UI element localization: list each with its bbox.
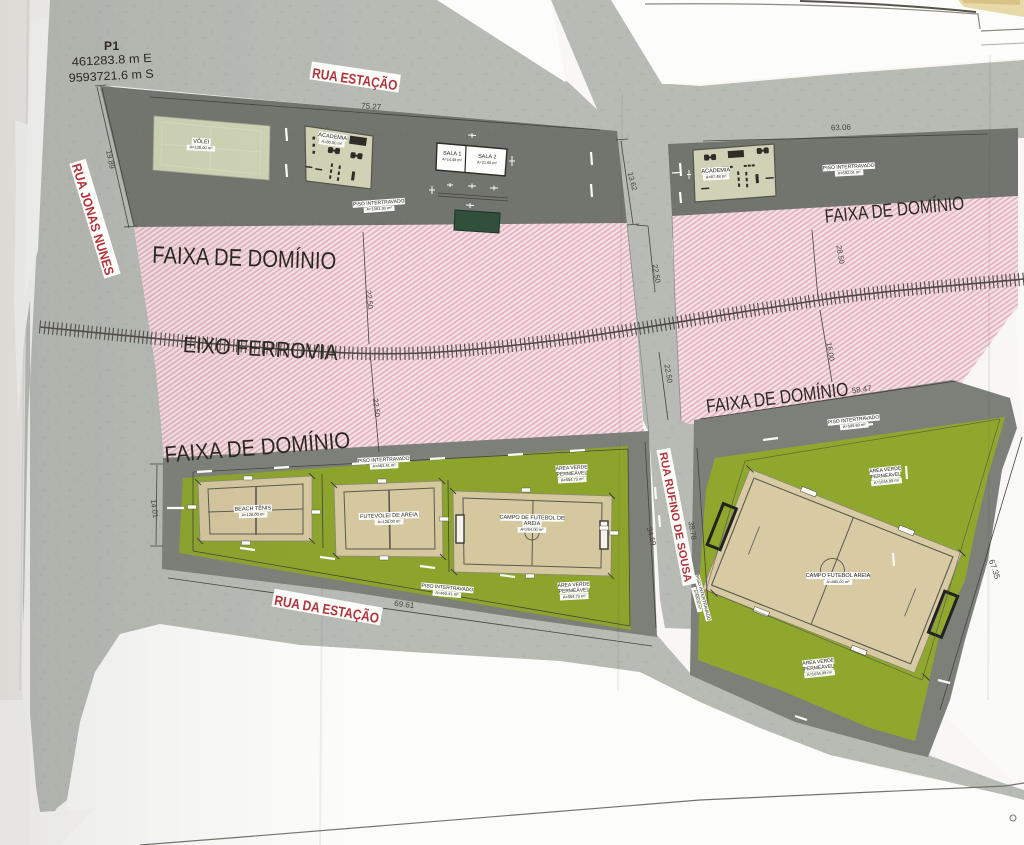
svg-text:75.27: 75.27 bbox=[361, 101, 382, 111]
svg-text:A=128.00 m²: A=128.00 m² bbox=[241, 511, 265, 517]
svg-text:SALA 2: SALA 2 bbox=[478, 154, 497, 161]
svg-text:SALA 1: SALA 1 bbox=[443, 151, 462, 158]
svg-text:P1: P1 bbox=[104, 39, 120, 53]
svg-text:63.06: 63.06 bbox=[831, 123, 852, 133]
svg-text:A=128.00 m²: A=128.00 m² bbox=[377, 518, 401, 524]
svg-text:A=264.00 m²: A=264.00 m² bbox=[520, 527, 544, 532]
svg-text:A=880.00 m²: A=880.00 m² bbox=[826, 579, 850, 584]
